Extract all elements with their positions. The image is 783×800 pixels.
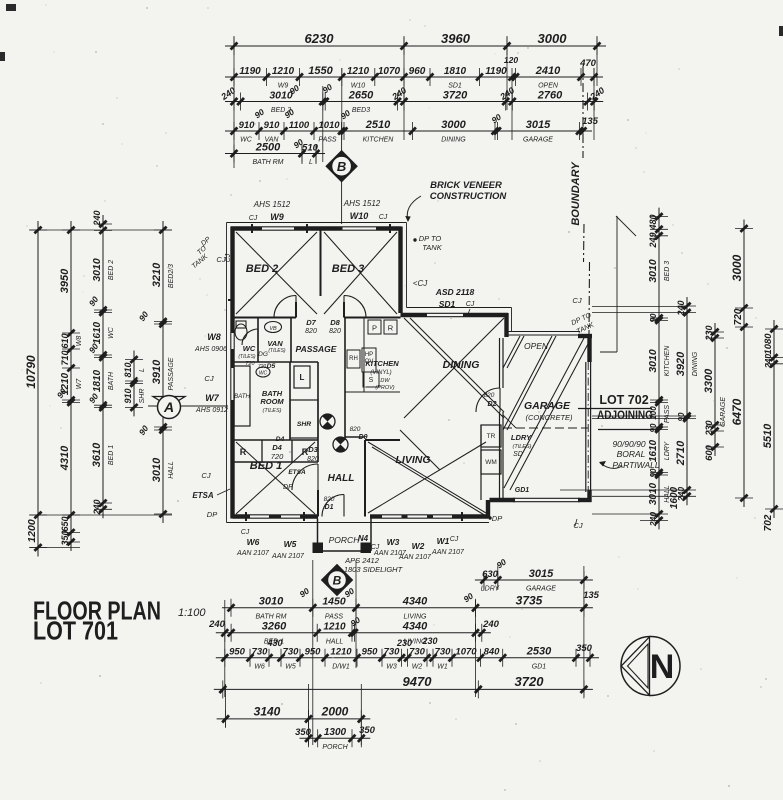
svg-text:90: 90	[87, 294, 101, 308]
svg-text:650: 650	[60, 516, 70, 531]
svg-text:120: 120	[504, 55, 518, 65]
svg-text:CONSTRUCTION: CONSTRUCTION	[430, 191, 508, 202]
svg-text:HALL: HALL	[326, 638, 344, 645]
svg-text:1610: 1610	[648, 439, 659, 462]
svg-text:HALL: HALL	[168, 461, 175, 479]
svg-text:3260: 3260	[262, 621, 287, 633]
svg-text:GARAGE: GARAGE	[526, 586, 556, 593]
svg-text:720: 720	[245, 361, 255, 367]
svg-text:DINING: DINING	[441, 137, 466, 144]
svg-text:DG: DG	[258, 351, 268, 358]
svg-text:90: 90	[677, 412, 686, 421]
svg-text:CJ: CJ	[204, 374, 213, 383]
svg-text:1810: 1810	[92, 369, 103, 392]
svg-text:CJ: CJ	[379, 214, 388, 221]
svg-text:950: 950	[229, 647, 246, 658]
svg-text:D5: D5	[267, 363, 276, 370]
svg-text:WC: WC	[259, 371, 268, 377]
svg-text:WC: WC	[243, 344, 256, 353]
svg-text:AAN 2107: AAN 2107	[236, 550, 270, 557]
svg-text:RH: RH	[349, 356, 358, 362]
svg-text:2650: 2650	[348, 89, 374, 101]
svg-text:430: 430	[266, 638, 282, 648]
svg-text:90: 90	[87, 391, 101, 405]
svg-text:810: 810	[123, 362, 133, 377]
svg-text:230: 230	[704, 420, 714, 436]
svg-text:960: 960	[409, 66, 426, 77]
svg-text:LOT 702: LOT 702	[599, 393, 648, 407]
svg-text:3015: 3015	[529, 568, 554, 580]
svg-text:PASS: PASS	[664, 405, 671, 423]
svg-text:D/W1: D/W1	[332, 663, 350, 670]
svg-text:630: 630	[482, 569, 499, 580]
svg-text:610: 610	[60, 333, 70, 348]
svg-text:LDRY: LDRY	[664, 440, 671, 460]
svg-text:W1: W1	[437, 536, 450, 546]
svg-text:DP: DP	[207, 510, 217, 519]
svg-text:W3: W3	[387, 537, 400, 547]
svg-text:90: 90	[462, 591, 476, 605]
svg-text:3140: 3140	[254, 705, 281, 719]
svg-text:W7: W7	[205, 393, 219, 403]
svg-text:1190: 1190	[485, 66, 507, 77]
svg-text:240: 240	[676, 300, 686, 316]
svg-text:702: 702	[763, 514, 774, 531]
svg-text:820: 820	[307, 456, 319, 463]
svg-text:90: 90	[649, 423, 658, 432]
svg-text:135: 135	[582, 116, 599, 127]
svg-text:3920: 3920	[675, 351, 687, 376]
svg-text:820: 820	[324, 496, 335, 503]
svg-text:5510: 5510	[762, 423, 774, 448]
svg-text:AAN 2107: AAN 2107	[398, 554, 432, 561]
svg-text:BED3: BED3	[352, 107, 370, 114]
svg-text:KITCHEN: KITCHEN	[664, 345, 671, 377]
svg-text:730: 730	[435, 647, 452, 658]
svg-text:PASS: PASS	[325, 613, 343, 620]
svg-text:730: 730	[252, 647, 269, 658]
svg-text:DP TO: DP TO	[419, 234, 442, 243]
svg-text:730: 730	[409, 647, 426, 658]
svg-text:90: 90	[339, 108, 353, 122]
svg-text:BED 3: BED 3	[664, 261, 671, 281]
svg-text:3010: 3010	[648, 482, 659, 505]
svg-text:240: 240	[482, 619, 500, 630]
svg-text:90/90/90: 90/90/90	[612, 439, 645, 449]
svg-text:730: 730	[384, 647, 401, 658]
svg-text:N4: N4	[358, 534, 369, 543]
svg-text:820: 820	[305, 328, 317, 335]
svg-text:910: 910	[123, 388, 133, 403]
svg-text:3300: 3300	[703, 368, 715, 393]
svg-text:GD1: GD1	[515, 487, 530, 494]
svg-text:PORCH: PORCH	[329, 535, 361, 545]
svg-text:BED 2: BED 2	[246, 263, 278, 275]
svg-text:90: 90	[349, 615, 363, 629]
svg-text:240: 240	[648, 512, 658, 527]
svg-text:1210: 1210	[330, 647, 352, 658]
svg-text:3015: 3015	[526, 119, 551, 131]
svg-text:90: 90	[137, 423, 151, 437]
svg-text:HALL: HALL	[328, 473, 355, 484]
svg-text:W6: W6	[254, 663, 265, 670]
svg-text:BORAL: BORAL	[617, 449, 646, 459]
svg-text:3000: 3000	[538, 31, 568, 46]
svg-text:VAN: VAN	[267, 339, 283, 348]
svg-text:BRICK VENEER: BRICK VENEER	[430, 180, 502, 191]
svg-text:PASS: PASS	[318, 137, 336, 144]
svg-text:9470: 9470	[403, 674, 433, 689]
svg-text:2510: 2510	[365, 119, 391, 131]
svg-text:350: 350	[576, 643, 593, 654]
svg-text:KITCHEN: KITCHEN	[365, 359, 399, 368]
svg-text:W9: W9	[270, 212, 284, 222]
svg-text:AHS 0906: AHS 0906	[194, 346, 227, 353]
svg-text:D4: D4	[276, 436, 285, 443]
svg-text:240: 240	[208, 619, 226, 630]
svg-text:240: 240	[92, 210, 102, 226]
svg-text:W1: W1	[437, 663, 448, 670]
svg-text:90: 90	[490, 112, 504, 126]
svg-text:820: 820	[329, 328, 341, 335]
svg-text:W6: W6	[247, 537, 260, 547]
svg-text:CJ: CJ	[572, 296, 581, 305]
svg-text:2410: 2410	[535, 65, 561, 77]
svg-text:3720: 3720	[515, 674, 545, 689]
svg-text:1210: 1210	[323, 622, 346, 633]
svg-text:W8: W8	[207, 332, 221, 342]
svg-text:SHR: SHR	[139, 389, 146, 404]
svg-text:350: 350	[295, 727, 312, 738]
svg-text:A: A	[163, 399, 174, 415]
svg-text:3010: 3010	[151, 457, 163, 482]
svg-text:230: 230	[704, 325, 714, 341]
svg-text:1010: 1010	[318, 120, 340, 131]
svg-text:ASD 2118: ASD 2118	[435, 287, 475, 297]
svg-text:950: 950	[362, 647, 379, 658]
svg-text:D1: D1	[325, 504, 334, 511]
svg-text:LIVING: LIVING	[404, 613, 428, 620]
svg-text:3735: 3735	[516, 594, 543, 608]
svg-text:APS 2412: APS 2412	[344, 556, 380, 565]
svg-text:3910: 3910	[151, 359, 163, 384]
svg-text:(PROV): (PROV)	[375, 385, 394, 391]
svg-text:BED2/3: BED2/3	[168, 264, 175, 288]
svg-text:3010: 3010	[647, 349, 659, 373]
svg-text:4310: 4310	[59, 445, 71, 471]
svg-text:KITCHEN: KITCHEN	[363, 137, 395, 144]
svg-text:2710: 2710	[675, 440, 687, 466]
svg-text:W5: W5	[285, 663, 296, 670]
svg-text:BED 1: BED 1	[108, 445, 115, 465]
svg-text:(TILES): (TILES)	[268, 348, 286, 354]
svg-text:BED 1: BED 1	[250, 460, 282, 472]
svg-text:BATH: BATH	[234, 393, 251, 400]
svg-text:720: 720	[258, 364, 267, 370]
svg-text:2530: 2530	[526, 646, 552, 658]
svg-text:BATH RM: BATH RM	[253, 159, 284, 166]
svg-text:P: P	[372, 324, 377, 333]
svg-text:3720: 3720	[443, 89, 468, 101]
svg-text:DINING: DINING	[692, 351, 699, 376]
svg-text:1070: 1070	[455, 647, 477, 658]
svg-text:1210: 1210	[272, 66, 295, 77]
svg-text:D8: D8	[330, 318, 340, 327]
svg-text:BED 2: BED 2	[108, 260, 115, 280]
svg-text:90: 90	[649, 313, 658, 322]
svg-text:480: 480	[648, 214, 658, 230]
svg-text:1810: 1810	[444, 66, 467, 77]
svg-text:3010: 3010	[647, 259, 659, 283]
svg-text:BED 3: BED 3	[332, 263, 364, 275]
svg-text:BATH RM: BATH RM	[256, 613, 287, 620]
svg-text:1190: 1190	[239, 66, 261, 77]
svg-text:GARAGE: GARAGE	[720, 397, 727, 427]
svg-text:3950: 3950	[59, 268, 71, 293]
svg-text:1070: 1070	[378, 66, 401, 77]
svg-text:PASSAGE: PASSAGE	[168, 357, 175, 390]
svg-text:(TILES): (TILES)	[263, 408, 282, 414]
svg-text:1200: 1200	[26, 519, 38, 543]
svg-text:ETSA: ETSA	[192, 491, 214, 500]
svg-text:CJ: CJ	[249, 215, 258, 222]
svg-text:1100: 1100	[289, 120, 310, 131]
svg-text:3010: 3010	[91, 258, 103, 282]
svg-text:ROOM: ROOM	[260, 397, 284, 406]
svg-text:3010: 3010	[259, 596, 284, 608]
svg-text:PASSAGE: PASSAGE	[296, 344, 337, 354]
svg-text:6230: 6230	[305, 31, 335, 46]
svg-text:AAN 2107: AAN 2107	[271, 553, 305, 560]
svg-text:LOT 701: LOT 701	[33, 616, 118, 646]
svg-text:(TILES): (TILES)	[238, 354, 256, 360]
svg-text:90: 90	[298, 586, 312, 600]
svg-text:1210: 1210	[347, 66, 370, 77]
svg-text:90: 90	[137, 309, 151, 323]
svg-text:W3: W3	[386, 663, 397, 670]
svg-text:HP: HP	[365, 352, 373, 358]
svg-text:910: 910	[239, 120, 256, 131]
svg-text:1550: 1550	[308, 65, 333, 77]
svg-text:3610: 3610	[91, 442, 103, 467]
svg-text:WM: WM	[485, 459, 497, 466]
svg-text:600: 600	[704, 444, 715, 461]
svg-text:DW: DW	[380, 378, 390, 384]
svg-text:840: 840	[484, 647, 501, 658]
svg-text:AHS 0912: AHS 0912	[195, 407, 228, 414]
svg-text:3210: 3210	[151, 262, 163, 287]
svg-text:2500: 2500	[255, 141, 281, 153]
svg-text:10790: 10790	[24, 355, 38, 389]
svg-text:B: B	[333, 574, 342, 588]
svg-text:4340: 4340	[402, 621, 428, 633]
svg-text:ADJOINING: ADJOINING	[597, 408, 653, 422]
svg-text:135: 135	[583, 590, 600, 601]
svg-text:230: 230	[421, 636, 437, 646]
svg-text:D7: D7	[306, 318, 316, 327]
svg-text:PARTIWALL: PARTIWALL	[612, 460, 660, 470]
svg-text:820: 820	[350, 426, 361, 433]
svg-text:W7: W7	[76, 378, 83, 390]
svg-text:W2: W2	[412, 663, 423, 670]
svg-text:720: 720	[733, 308, 744, 325]
svg-text:W2: W2	[412, 541, 425, 551]
svg-text:L: L	[309, 159, 313, 166]
svg-text:710: 710	[60, 350, 70, 365]
svg-text:<CJ: <CJ	[413, 279, 428, 288]
svg-text:D9: D9	[359, 434, 368, 441]
svg-text:1450: 1450	[322, 596, 346, 608]
svg-text:CJ: CJ	[241, 529, 250, 536]
svg-text:WC: WC	[108, 326, 115, 339]
svg-text:1:100: 1:100	[178, 607, 206, 619]
svg-text:VB: VB	[269, 326, 277, 332]
svg-text:240: 240	[92, 499, 102, 515]
svg-text:PORCH: PORCH	[322, 744, 348, 751]
svg-text:TANK: TANK	[422, 243, 442, 252]
svg-text:249: 249	[648, 232, 658, 248]
svg-text:W5: W5	[284, 539, 297, 549]
svg-text:2000: 2000	[321, 705, 349, 719]
svg-text:B: B	[337, 159, 346, 174]
svg-text:AAN 2107: AAN 2107	[431, 549, 465, 556]
svg-text:W8: W8	[76, 336, 83, 347]
svg-text:R: R	[388, 324, 394, 333]
svg-text:TR: TR	[487, 433, 496, 440]
svg-text:L: L	[139, 368, 146, 372]
svg-text:AHS 1512: AHS 1512	[343, 199, 381, 208]
svg-text:1300: 1300	[324, 727, 347, 738]
svg-text:GD1: GD1	[532, 663, 547, 670]
svg-text:3000: 3000	[730, 254, 744, 281]
svg-text:350: 350	[60, 530, 70, 545]
svg-text:470: 470	[579, 58, 597, 69]
svg-text:1080: 1080	[763, 333, 774, 355]
svg-text:CJ: CJ	[450, 536, 459, 543]
svg-text:730: 730	[283, 647, 300, 658]
svg-text:W10: W10	[350, 211, 369, 221]
svg-text:ETSA: ETSA	[288, 469, 306, 476]
svg-text:D2: D2	[488, 401, 497, 408]
svg-text:2760: 2760	[537, 89, 563, 101]
svg-text:D4: D4	[272, 443, 282, 452]
svg-text:240: 240	[763, 354, 773, 369]
svg-text:1600: 1600	[669, 486, 680, 509]
svg-text:910: 910	[264, 120, 281, 131]
svg-text:WC: WC	[240, 137, 253, 144]
svg-text:GARAGE: GARAGE	[523, 137, 553, 144]
svg-text:CJ: CJ	[466, 301, 475, 308]
svg-text:6470: 6470	[730, 398, 744, 425]
svg-text:BATH: BATH	[108, 371, 115, 390]
svg-text:SD1: SD1	[439, 299, 456, 309]
svg-text:1803 SIDELIGHT: 1803 SIDELIGHT	[344, 565, 404, 574]
svg-text:CJ: CJ	[225, 253, 232, 262]
svg-text:S: S	[369, 377, 374, 384]
svg-text:3960: 3960	[441, 31, 471, 46]
svg-text:AHS 1512: AHS 1512	[253, 200, 291, 209]
svg-text:(TILES): (TILES)	[513, 444, 532, 450]
svg-text:DP: DP	[492, 514, 502, 523]
svg-text:CJ: CJ	[201, 471, 210, 480]
svg-text:1610: 1610	[92, 321, 103, 344]
svg-text:N: N	[650, 648, 675, 686]
svg-text:SHR: SHR	[297, 421, 311, 428]
svg-text:3000: 3000	[441, 119, 466, 131]
svg-text:4340: 4340	[402, 596, 428, 608]
svg-text:90: 90	[253, 107, 267, 121]
svg-text:BOUNDARY: BOUNDARY	[570, 161, 582, 226]
svg-text:(VINYL): (VINYL)	[370, 370, 391, 376]
svg-text:L: L	[300, 373, 305, 382]
